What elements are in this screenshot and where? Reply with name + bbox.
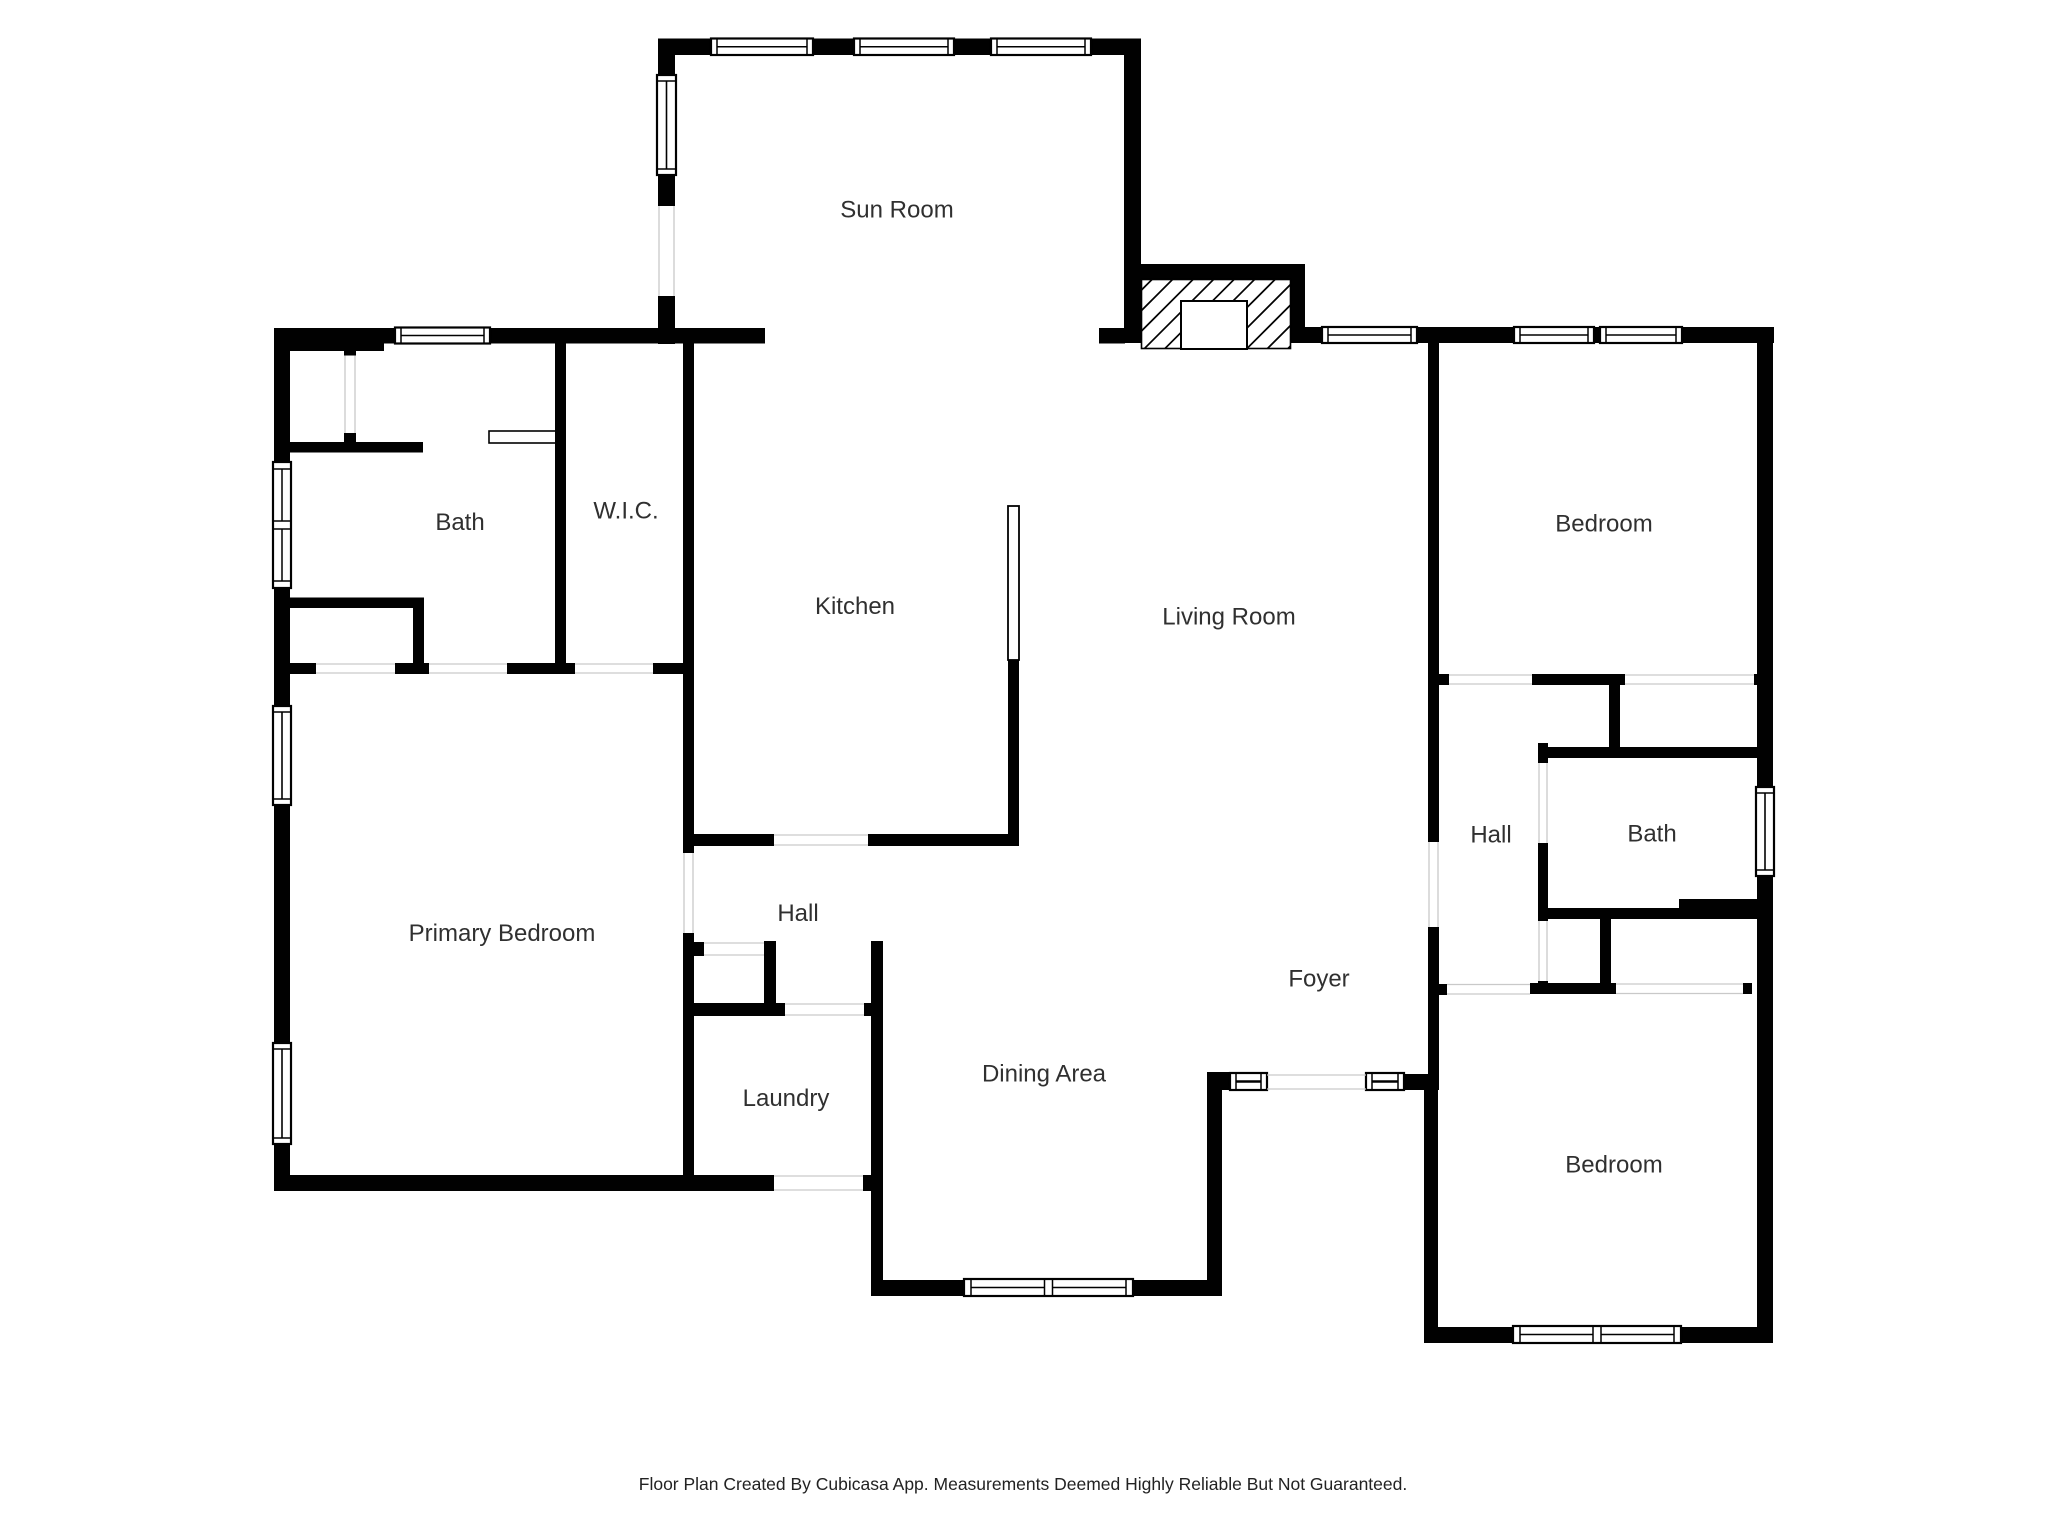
svg-text:Bedroom: Bedroom bbox=[1555, 511, 1652, 538]
svg-text:Hall: Hall bbox=[777, 900, 818, 927]
svg-text:Laundry: Laundry bbox=[743, 1085, 830, 1112]
svg-text:Dining Area: Dining Area bbox=[982, 1061, 1107, 1088]
svg-text:Bedroom: Bedroom bbox=[1565, 1152, 1662, 1179]
svg-text:Sun Room: Sun Room bbox=[840, 197, 953, 224]
svg-text:Living Room: Living Room bbox=[1162, 604, 1295, 631]
svg-text:W.I.C.: W.I.C. bbox=[593, 498, 658, 525]
svg-text:Foyer: Foyer bbox=[1288, 966, 1349, 993]
svg-text:Kitchen: Kitchen bbox=[815, 593, 895, 620]
svg-text:Bath: Bath bbox=[1627, 821, 1676, 848]
svg-text:Bath: Bath bbox=[435, 509, 484, 536]
svg-text:Primary Bedroom: Primary Bedroom bbox=[409, 920, 596, 947]
svg-text:Floor Plan Created By Cubicasa: Floor Plan Created By Cubicasa App. Meas… bbox=[639, 1474, 1407, 1494]
svg-text:Hall: Hall bbox=[1470, 822, 1511, 849]
